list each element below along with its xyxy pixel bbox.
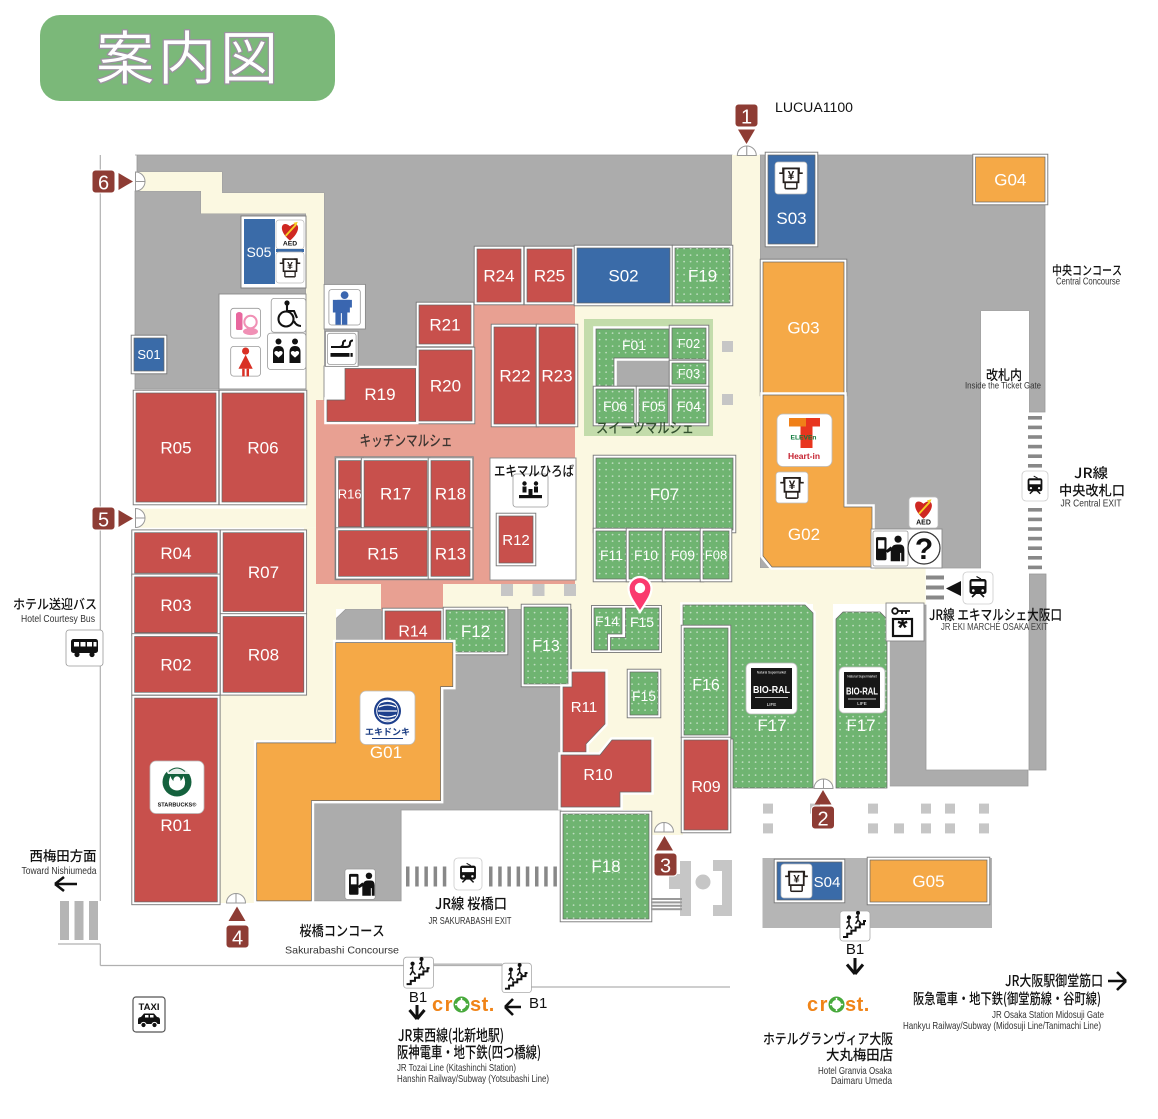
svg-text:LIFE: LIFE <box>767 702 777 707</box>
svg-text:B1: B1 <box>529 995 547 1012</box>
svg-text:R09: R09 <box>691 779 720 796</box>
svg-text:G01: G01 <box>370 743 402 762</box>
svg-text:G05: G05 <box>912 872 944 891</box>
svg-text:5: 5 <box>98 510 109 532</box>
svg-text:R02: R02 <box>160 655 191 674</box>
svg-text:3: 3 <box>660 856 671 878</box>
svg-text:R08: R08 <box>248 645 279 664</box>
svg-text:BIO-RAL: BIO-RAL <box>846 686 878 698</box>
svg-text:ELEVEn: ELEVEn <box>791 435 817 442</box>
svg-text:AED: AED <box>283 241 297 248</box>
svg-text:F15: F15 <box>630 614 654 630</box>
svg-text:F01: F01 <box>622 337 646 353</box>
svg-text:R10: R10 <box>583 767 612 784</box>
svg-text:S04: S04 <box>814 874 841 891</box>
svg-text:S05: S05 <box>247 244 272 260</box>
svg-text:R04: R04 <box>160 544 191 563</box>
svg-text:F15: F15 <box>632 688 656 704</box>
svg-text:R12: R12 <box>502 532 530 549</box>
svg-text:JR SAKURABASHI EXIT: JR SAKURABASHI EXIT <box>429 916 512 927</box>
svg-text:F09: F09 <box>671 547 695 563</box>
svg-text:Central Concourse: Central Concourse <box>1056 276 1120 288</box>
svg-text:AED: AED <box>916 520 931 527</box>
svg-text:F12: F12 <box>461 622 490 641</box>
svg-text:*: * <box>897 613 908 643</box>
svg-text:F18: F18 <box>591 857 620 876</box>
svg-text:¥: ¥ <box>287 261 293 272</box>
svg-text:R07: R07 <box>248 563 279 582</box>
svg-text:Sakurabashi Concourse: Sakurabashi Concourse <box>285 945 399 957</box>
svg-text:R15: R15 <box>367 544 398 563</box>
svg-text:B1: B1 <box>409 989 427 1006</box>
svg-text:LIFE: LIFE <box>857 701 867 706</box>
svg-text:R01: R01 <box>160 816 191 835</box>
svg-text:S03: S03 <box>776 209 806 228</box>
svg-text:¥: ¥ <box>789 479 796 492</box>
svg-text:?: ? <box>915 533 933 566</box>
svg-text:Hankyu Railway/Subway (Midosuj: Hankyu Railway/Subway (Midosuji Line/Tan… <box>903 1020 1101 1032</box>
svg-text:Natural Supermarket: Natural Supermarket <box>847 675 877 679</box>
svg-text:st.: st. <box>845 994 870 1016</box>
svg-text:G03: G03 <box>787 318 819 337</box>
svg-text:F11: F11 <box>600 547 623 563</box>
svg-text:S01: S01 <box>137 347 160 362</box>
svg-text:1: 1 <box>741 107 752 129</box>
svg-text:R13: R13 <box>435 544 466 563</box>
svg-text:F06: F06 <box>603 398 627 414</box>
svg-text:Natural Supermarket: Natural Supermarket <box>757 671 787 675</box>
svg-text:F04: F04 <box>677 398 701 414</box>
svg-text:R03: R03 <box>160 596 191 615</box>
svg-text:st.: st. <box>470 994 495 1016</box>
svg-text:Hanshin Railway/Subway (Yotsub: Hanshin Railway/Subway (Yotsubashi Line) <box>397 1073 549 1085</box>
svg-text:F07: F07 <box>650 485 679 504</box>
svg-text:JR Central EXIT: JR Central EXIT <box>1061 498 1122 510</box>
svg-text:G02: G02 <box>788 525 820 544</box>
svg-text:F14: F14 <box>595 613 619 629</box>
svg-text:R21: R21 <box>429 315 460 334</box>
svg-text:LUCUA1100: LUCUA1100 <box>775 100 853 115</box>
svg-text:¥: ¥ <box>793 874 800 886</box>
svg-text:R20: R20 <box>430 376 461 395</box>
svg-text:R24: R24 <box>483 266 514 285</box>
svg-text:R17: R17 <box>380 485 411 504</box>
svg-text:F08: F08 <box>705 548 727 563</box>
svg-text:F10: F10 <box>634 547 658 563</box>
svg-text:B1: B1 <box>846 941 864 958</box>
svg-text:R06: R06 <box>247 438 278 457</box>
svg-text:F13: F13 <box>532 638 560 655</box>
svg-text:¥: ¥ <box>788 170 795 183</box>
svg-text:R16: R16 <box>338 486 362 501</box>
svg-text:STARBUCKS®: STARBUCKS® <box>158 802 198 809</box>
svg-text:Hotel Courtesy Bus: Hotel Courtesy Bus <box>21 614 95 625</box>
svg-text:F03: F03 <box>678 366 700 381</box>
svg-text:R22: R22 <box>499 366 530 385</box>
svg-text:R11: R11 <box>571 699 597 716</box>
svg-text:Toward Nishiumeda: Toward Nishiumeda <box>22 866 97 877</box>
svg-text:2: 2 <box>817 809 828 831</box>
svg-text:F02: F02 <box>678 336 700 351</box>
svg-text:F05: F05 <box>641 398 665 414</box>
svg-text:R19: R19 <box>364 385 395 404</box>
svg-text:F17: F17 <box>846 716 875 735</box>
svg-text:R25: R25 <box>534 266 565 285</box>
svg-text:S02: S02 <box>608 266 638 285</box>
svg-text:R05: R05 <box>160 438 191 457</box>
svg-text:G04: G04 <box>994 170 1026 189</box>
svg-text:R18: R18 <box>435 485 466 504</box>
svg-text:BIO-RAL: BIO-RAL <box>753 684 790 696</box>
svg-text:TAXI: TAXI <box>139 1002 160 1013</box>
svg-text:cr: cr <box>432 994 454 1016</box>
svg-text:R14: R14 <box>398 624 427 641</box>
svg-text:JR EKI MARCHÉ OSAKA EXIT: JR EKI MARCHÉ OSAKA EXIT <box>941 620 1048 633</box>
svg-text:Daimaru Umeda: Daimaru Umeda <box>831 1075 892 1087</box>
svg-text:6: 6 <box>98 173 109 195</box>
svg-text:cr: cr <box>807 994 829 1016</box>
svg-text:F17: F17 <box>757 716 786 735</box>
svg-text:R23: R23 <box>541 366 572 385</box>
svg-text:F19: F19 <box>688 266 717 285</box>
svg-text:F16: F16 <box>692 677 720 694</box>
svg-text:Heart-in: Heart-in <box>788 451 820 461</box>
svg-text:Inside the Ticket Gate: Inside the Ticket Gate <box>965 381 1041 392</box>
svg-text:4: 4 <box>232 928 243 950</box>
